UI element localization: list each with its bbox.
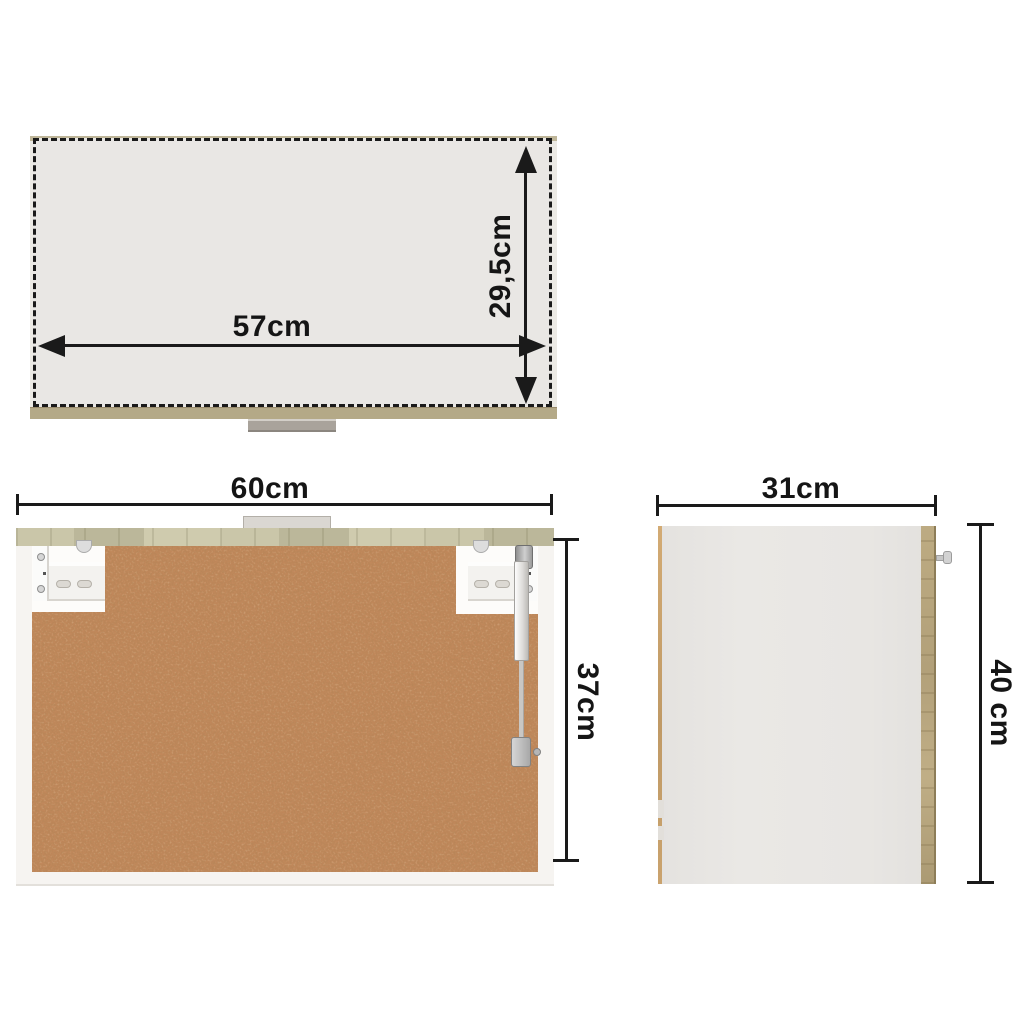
- top-view: 57cm 29,5cm: [0, 0, 1024, 460]
- top-view-front-edge: [30, 407, 557, 419]
- dim-line-57: [56, 344, 526, 347]
- dim-arrowhead-up-29-5: [515, 146, 537, 173]
- side-view: 31cm 40 cm: [0, 460, 1024, 1024]
- side-back-wood-strip: [921, 526, 936, 884]
- dim-arrowhead-down-29-5: [515, 377, 537, 404]
- wall-hook-head-icon: [943, 551, 952, 564]
- top-view-inner-outline: [33, 138, 552, 407]
- diagram-canvas: 57cm 29,5cm 60cm: [0, 0, 1024, 1024]
- side-panel: [658, 526, 936, 884]
- dim-label-57cm: 57cm: [233, 311, 312, 343]
- side-hinge-mark: [658, 826, 664, 840]
- dim-line-40: [979, 523, 982, 884]
- dim-label-29-5cm: 29,5cm: [485, 214, 517, 319]
- dim-arrowhead-left-57: [38, 335, 65, 357]
- dim-label-40cm: 40 cm: [984, 659, 1016, 747]
- side-hinge-mark: [658, 800, 664, 818]
- top-view-right-edge: [552, 141, 557, 407]
- dim-label-31cm: 31cm: [762, 473, 841, 505]
- door-handle-top: [248, 419, 336, 432]
- dim-line-29-5: [524, 162, 527, 390]
